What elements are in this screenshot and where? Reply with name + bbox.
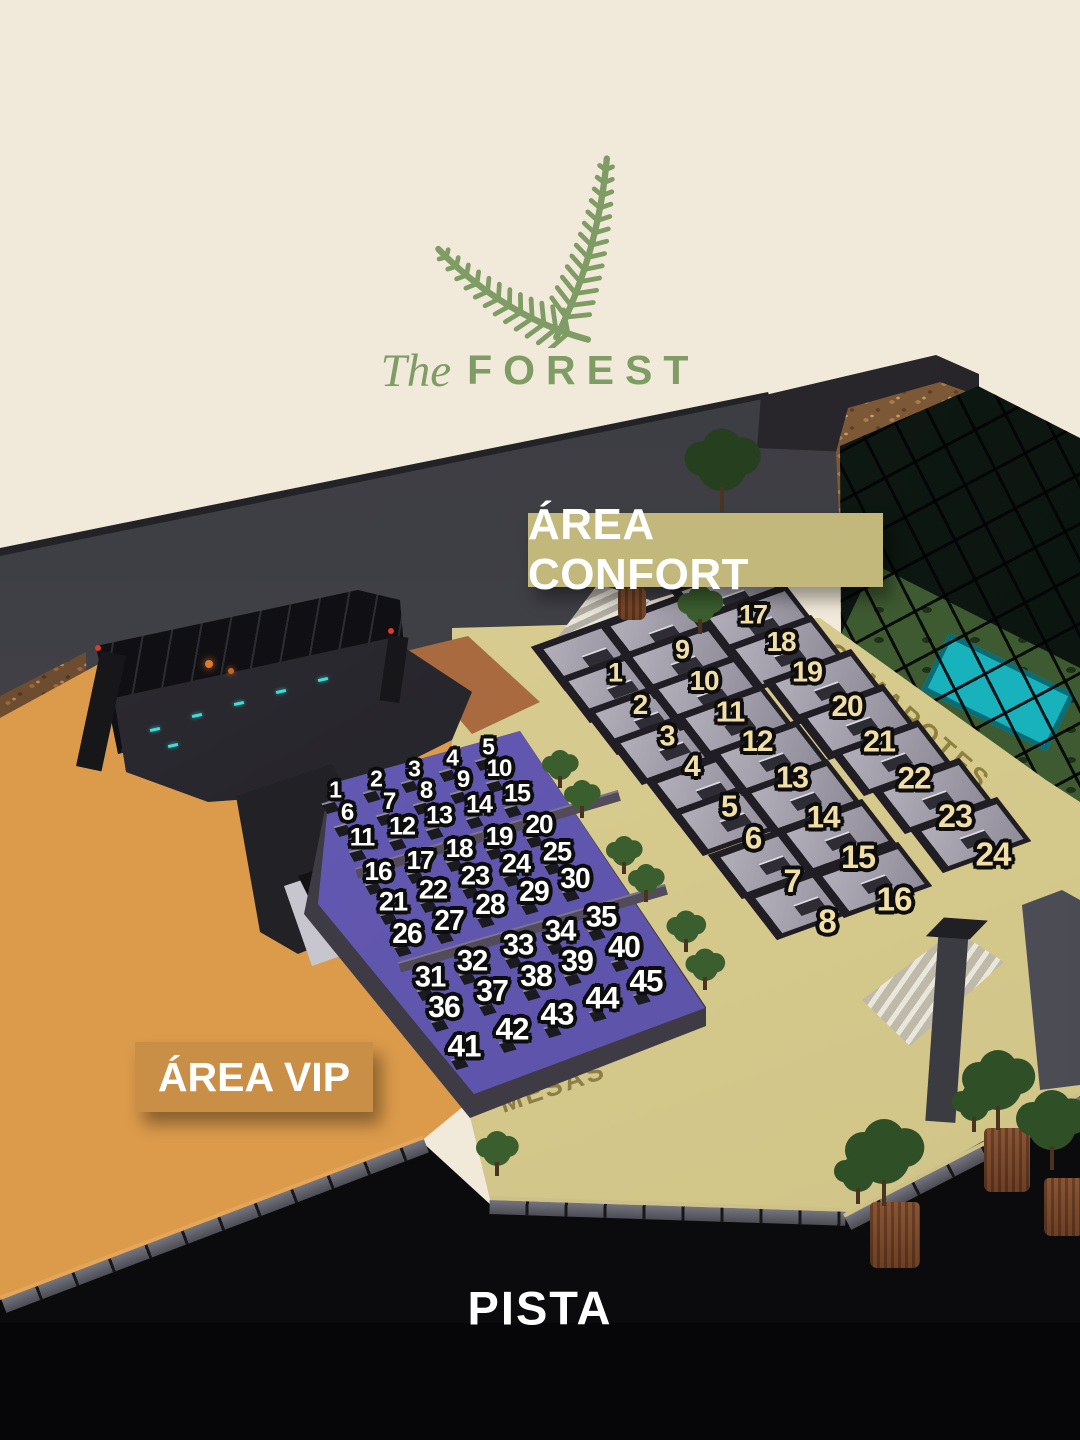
logo-the: The (381, 345, 452, 397)
vip-table-20[interactable]: 2020 (525, 811, 552, 837)
confort-table-19[interactable]: 1919 (792, 659, 822, 688)
vip-table-28[interactable]: 2828 (475, 890, 504, 918)
vip-table-2[interactable]: 22 (370, 768, 382, 791)
vip-table-21[interactable]: 2121 (379, 887, 407, 914)
confort-table-15[interactable]: 1515 (841, 841, 875, 873)
vip-table-8[interactable]: 88 (420, 779, 432, 803)
confort-table-11[interactable]: 1111 (716, 699, 744, 728)
vip-table-41[interactable]: 4141 (448, 1030, 481, 1061)
vip-table-32[interactable]: 3232 (457, 946, 488, 975)
vip-table-35[interactable]: 3535 (586, 902, 617, 931)
confort-table-7[interactable]: 77 (783, 865, 800, 897)
vip-table-10[interactable]: 1010 (487, 757, 512, 781)
vip-table-27[interactable]: 2727 (434, 906, 463, 934)
vip-table-45[interactable]: 4545 (630, 965, 663, 996)
vip-table-6[interactable]: 66 (341, 801, 353, 825)
confort-table-22[interactable]: 2222 (897, 762, 930, 794)
confort-table-13[interactable]: 1313 (776, 763, 808, 794)
vip-table-11[interactable]: 1111 (350, 825, 375, 850)
vip-table-18[interactable]: 1818 (445, 835, 472, 861)
confort-table-3[interactable]: 33 (659, 723, 674, 752)
vip-table-24[interactable]: 2424 (502, 849, 530, 876)
vip-table-31[interactable]: 3131 (415, 962, 446, 991)
vip-table-30[interactable]: 3030 (560, 864, 589, 892)
vip-table-33[interactable]: 3333 (503, 930, 534, 959)
forest-logo-leaves-icon (428, 148, 653, 348)
vip-table-25[interactable]: 2525 (543, 837, 571, 864)
vip-table-12[interactable]: 1212 (389, 814, 415, 839)
logo-forest: FOREST (467, 347, 699, 393)
vip-table-19[interactable]: 1919 (485, 823, 512, 849)
vip-table-38[interactable]: 3838 (520, 962, 552, 992)
confort-table-12[interactable]: 1212 (741, 727, 772, 757)
vip-table-3[interactable]: 33 (408, 758, 420, 781)
vip-table-29[interactable]: 2929 (519, 877, 548, 905)
vip-table-23[interactable]: 2323 (461, 861, 489, 888)
confort-table-14[interactable]: 1414 (806, 801, 839, 833)
vip-table-26[interactable]: 2626 (392, 919, 421, 947)
vip-table-17[interactable]: 1717 (406, 847, 433, 873)
confort-table-24[interactable]: 2424 (975, 838, 1010, 871)
vip-table-1[interactable]: 11 (329, 779, 341, 802)
confort-table-5[interactable]: 55 (721, 792, 737, 823)
vip-table-14[interactable]: 1414 (466, 792, 492, 817)
vip-table-7[interactable]: 77 (383, 790, 395, 814)
vip-table-34[interactable]: 3434 (545, 916, 576, 945)
confort-table-20[interactable]: 2020 (831, 692, 862, 722)
venue-map: CAMAROTES MESAS ÁREA CONFORT ÁREA VIP 11… (0, 0, 1080, 1440)
vip-table-40[interactable]: 4040 (608, 933, 640, 963)
confort-table-17[interactable]: 1717 (739, 602, 767, 629)
confort-table-16[interactable]: 1616 (876, 883, 911, 916)
vip-table-15[interactable]: 1515 (504, 781, 530, 806)
confort-table-21[interactable]: 2121 (863, 727, 895, 758)
vip-table-44[interactable]: 4444 (586, 982, 619, 1013)
confort-table-23[interactable]: 2323 (938, 800, 972, 832)
confort-table-10[interactable]: 1010 (689, 667, 718, 695)
confort-table-2[interactable]: 22 (633, 691, 648, 719)
vip-table-36[interactable]: 3636 (428, 993, 460, 1023)
confort-table-18[interactable]: 1818 (766, 628, 795, 656)
confort-table-1[interactable]: 11 (608, 660, 622, 687)
vip-table-37[interactable]: 3737 (476, 977, 508, 1007)
vip-table-22[interactable]: 2222 (419, 875, 447, 902)
vip-table-42[interactable]: 4242 (496, 1013, 529, 1044)
confort-table-6[interactable]: 66 (745, 822, 762, 854)
confort-table-4[interactable]: 44 (684, 752, 700, 782)
confort-table-9[interactable]: 99 (675, 637, 689, 664)
vip-table-13[interactable]: 1313 (426, 803, 452, 828)
vip-table-39[interactable]: 3939 (561, 947, 593, 977)
confort-table-8[interactable]: 88 (818, 905, 836, 938)
vip-table-43[interactable]: 4343 (541, 998, 574, 1029)
forest-logo-wordmark: TheFOREST (0, 344, 1080, 398)
pista-label: PISTA (468, 1281, 613, 1336)
vip-table-9[interactable]: 99 (457, 768, 469, 792)
vip-table-16[interactable]: 1616 (364, 858, 391, 884)
